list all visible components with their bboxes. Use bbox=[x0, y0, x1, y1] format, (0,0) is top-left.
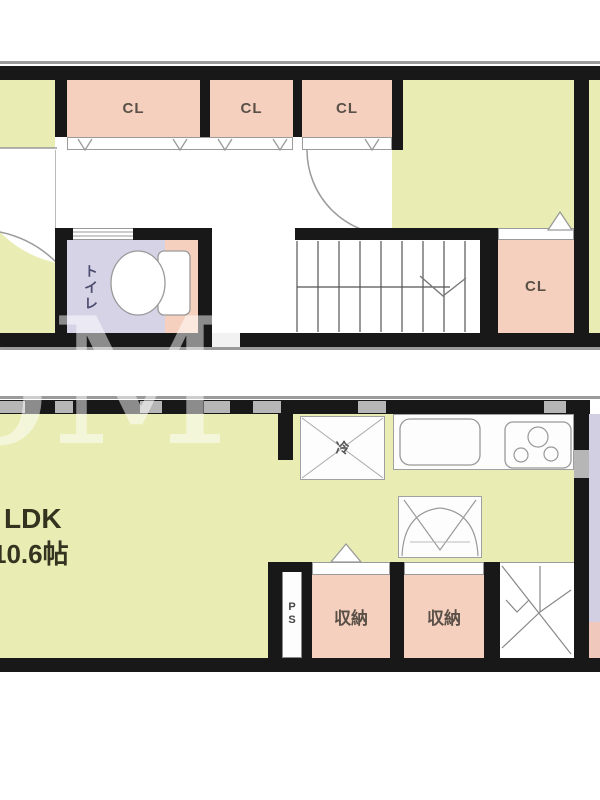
closet-label-text: CL bbox=[525, 278, 547, 295]
right-wall-window bbox=[574, 450, 589, 478]
toilet-wall-left bbox=[55, 228, 67, 333]
storage-label: 収納 bbox=[404, 575, 484, 658]
closet-label: CL bbox=[498, 240, 574, 333]
window-gap bbox=[0, 401, 25, 413]
ps-pier-right bbox=[302, 562, 312, 658]
toilet-label-text: トイレ bbox=[81, 264, 101, 312]
upper-stairs-top-wall bbox=[295, 228, 480, 240]
folding-door-unit bbox=[398, 496, 482, 558]
closet-track-4 bbox=[498, 228, 574, 240]
ldk-name-text: LDK bbox=[4, 503, 62, 535]
upper-bottom-wall-opening bbox=[212, 333, 240, 347]
lower-right-wall bbox=[574, 400, 589, 672]
ldk-size-label: 10.6帖 bbox=[0, 537, 112, 567]
ground-line-mid1 bbox=[0, 347, 600, 350]
fridge-label-text: 冷 bbox=[336, 438, 350, 458]
ps-pier-left bbox=[268, 562, 282, 658]
upper-right-wall bbox=[574, 66, 589, 347]
floorplan-canvas: CL CL CL CL トイレ LDK 10.6帖 冷 PS 収納 収納 oM bbox=[0, 0, 600, 800]
lower-top-wall bbox=[0, 400, 590, 414]
fridge-label: 冷 bbox=[300, 416, 385, 480]
upper-stairs-fill bbox=[212, 240, 480, 333]
kitchen-stub-wall bbox=[278, 414, 293, 460]
closet-track-3 bbox=[302, 137, 392, 150]
window-gap bbox=[204, 401, 230, 413]
storage-pier-mid bbox=[390, 562, 404, 658]
ground-line-top bbox=[0, 61, 600, 64]
window-gap bbox=[544, 401, 566, 413]
outside-right-lavender bbox=[589, 414, 600, 622]
closet-label: CL bbox=[210, 80, 293, 137]
closet-label: CL bbox=[302, 80, 392, 137]
closet-label-text: CL bbox=[336, 100, 358, 117]
closet-pier-0 bbox=[55, 80, 67, 137]
storage-pier-right bbox=[484, 562, 500, 658]
kitchen-counter bbox=[393, 414, 574, 470]
washbasin-strip bbox=[165, 240, 198, 333]
upper-doorway-fill bbox=[300, 137, 392, 240]
toilet-door bbox=[73, 228, 133, 240]
upper-stairs-right-wall bbox=[480, 228, 498, 333]
window-gap bbox=[358, 401, 386, 413]
outside-right-pink bbox=[589, 622, 600, 658]
toilet-label: トイレ bbox=[80, 246, 102, 330]
lower-stairs-fill bbox=[500, 562, 574, 658]
ground-line-mid2 bbox=[0, 396, 600, 399]
window-gap bbox=[55, 401, 73, 413]
closet-pier-1 bbox=[200, 80, 210, 137]
storage-label-text: 収納 bbox=[334, 604, 368, 629]
closet-track-1 bbox=[67, 137, 293, 150]
ldk-name-label: LDK bbox=[4, 503, 94, 535]
storage-label-text: 収納 bbox=[427, 604, 461, 629]
closet-label-text: CL bbox=[241, 100, 263, 117]
closet-pier-2 bbox=[293, 80, 302, 137]
storage-track-2 bbox=[404, 562, 484, 575]
lower-bottom-wall bbox=[0, 658, 600, 672]
toilet-wall-right bbox=[198, 228, 212, 333]
storage-label: 収納 bbox=[312, 575, 390, 658]
upper-bottom-wall bbox=[0, 333, 600, 347]
closet-pier-3 bbox=[392, 80, 403, 150]
ps-label-text: PS bbox=[286, 601, 298, 627]
window-gap bbox=[253, 401, 281, 413]
ps-label: PS bbox=[282, 580, 302, 648]
toilet-wall-top-a bbox=[55, 228, 73, 240]
closet-label-text: CL bbox=[123, 100, 145, 117]
window-gap bbox=[140, 401, 162, 413]
ldk-size-text: 10.6帖 bbox=[0, 534, 69, 571]
closet-label: CL bbox=[67, 80, 200, 137]
upper-top-wall bbox=[0, 66, 600, 80]
storage-track-1 bbox=[312, 562, 390, 575]
upper-room-sliver-right bbox=[589, 80, 600, 333]
